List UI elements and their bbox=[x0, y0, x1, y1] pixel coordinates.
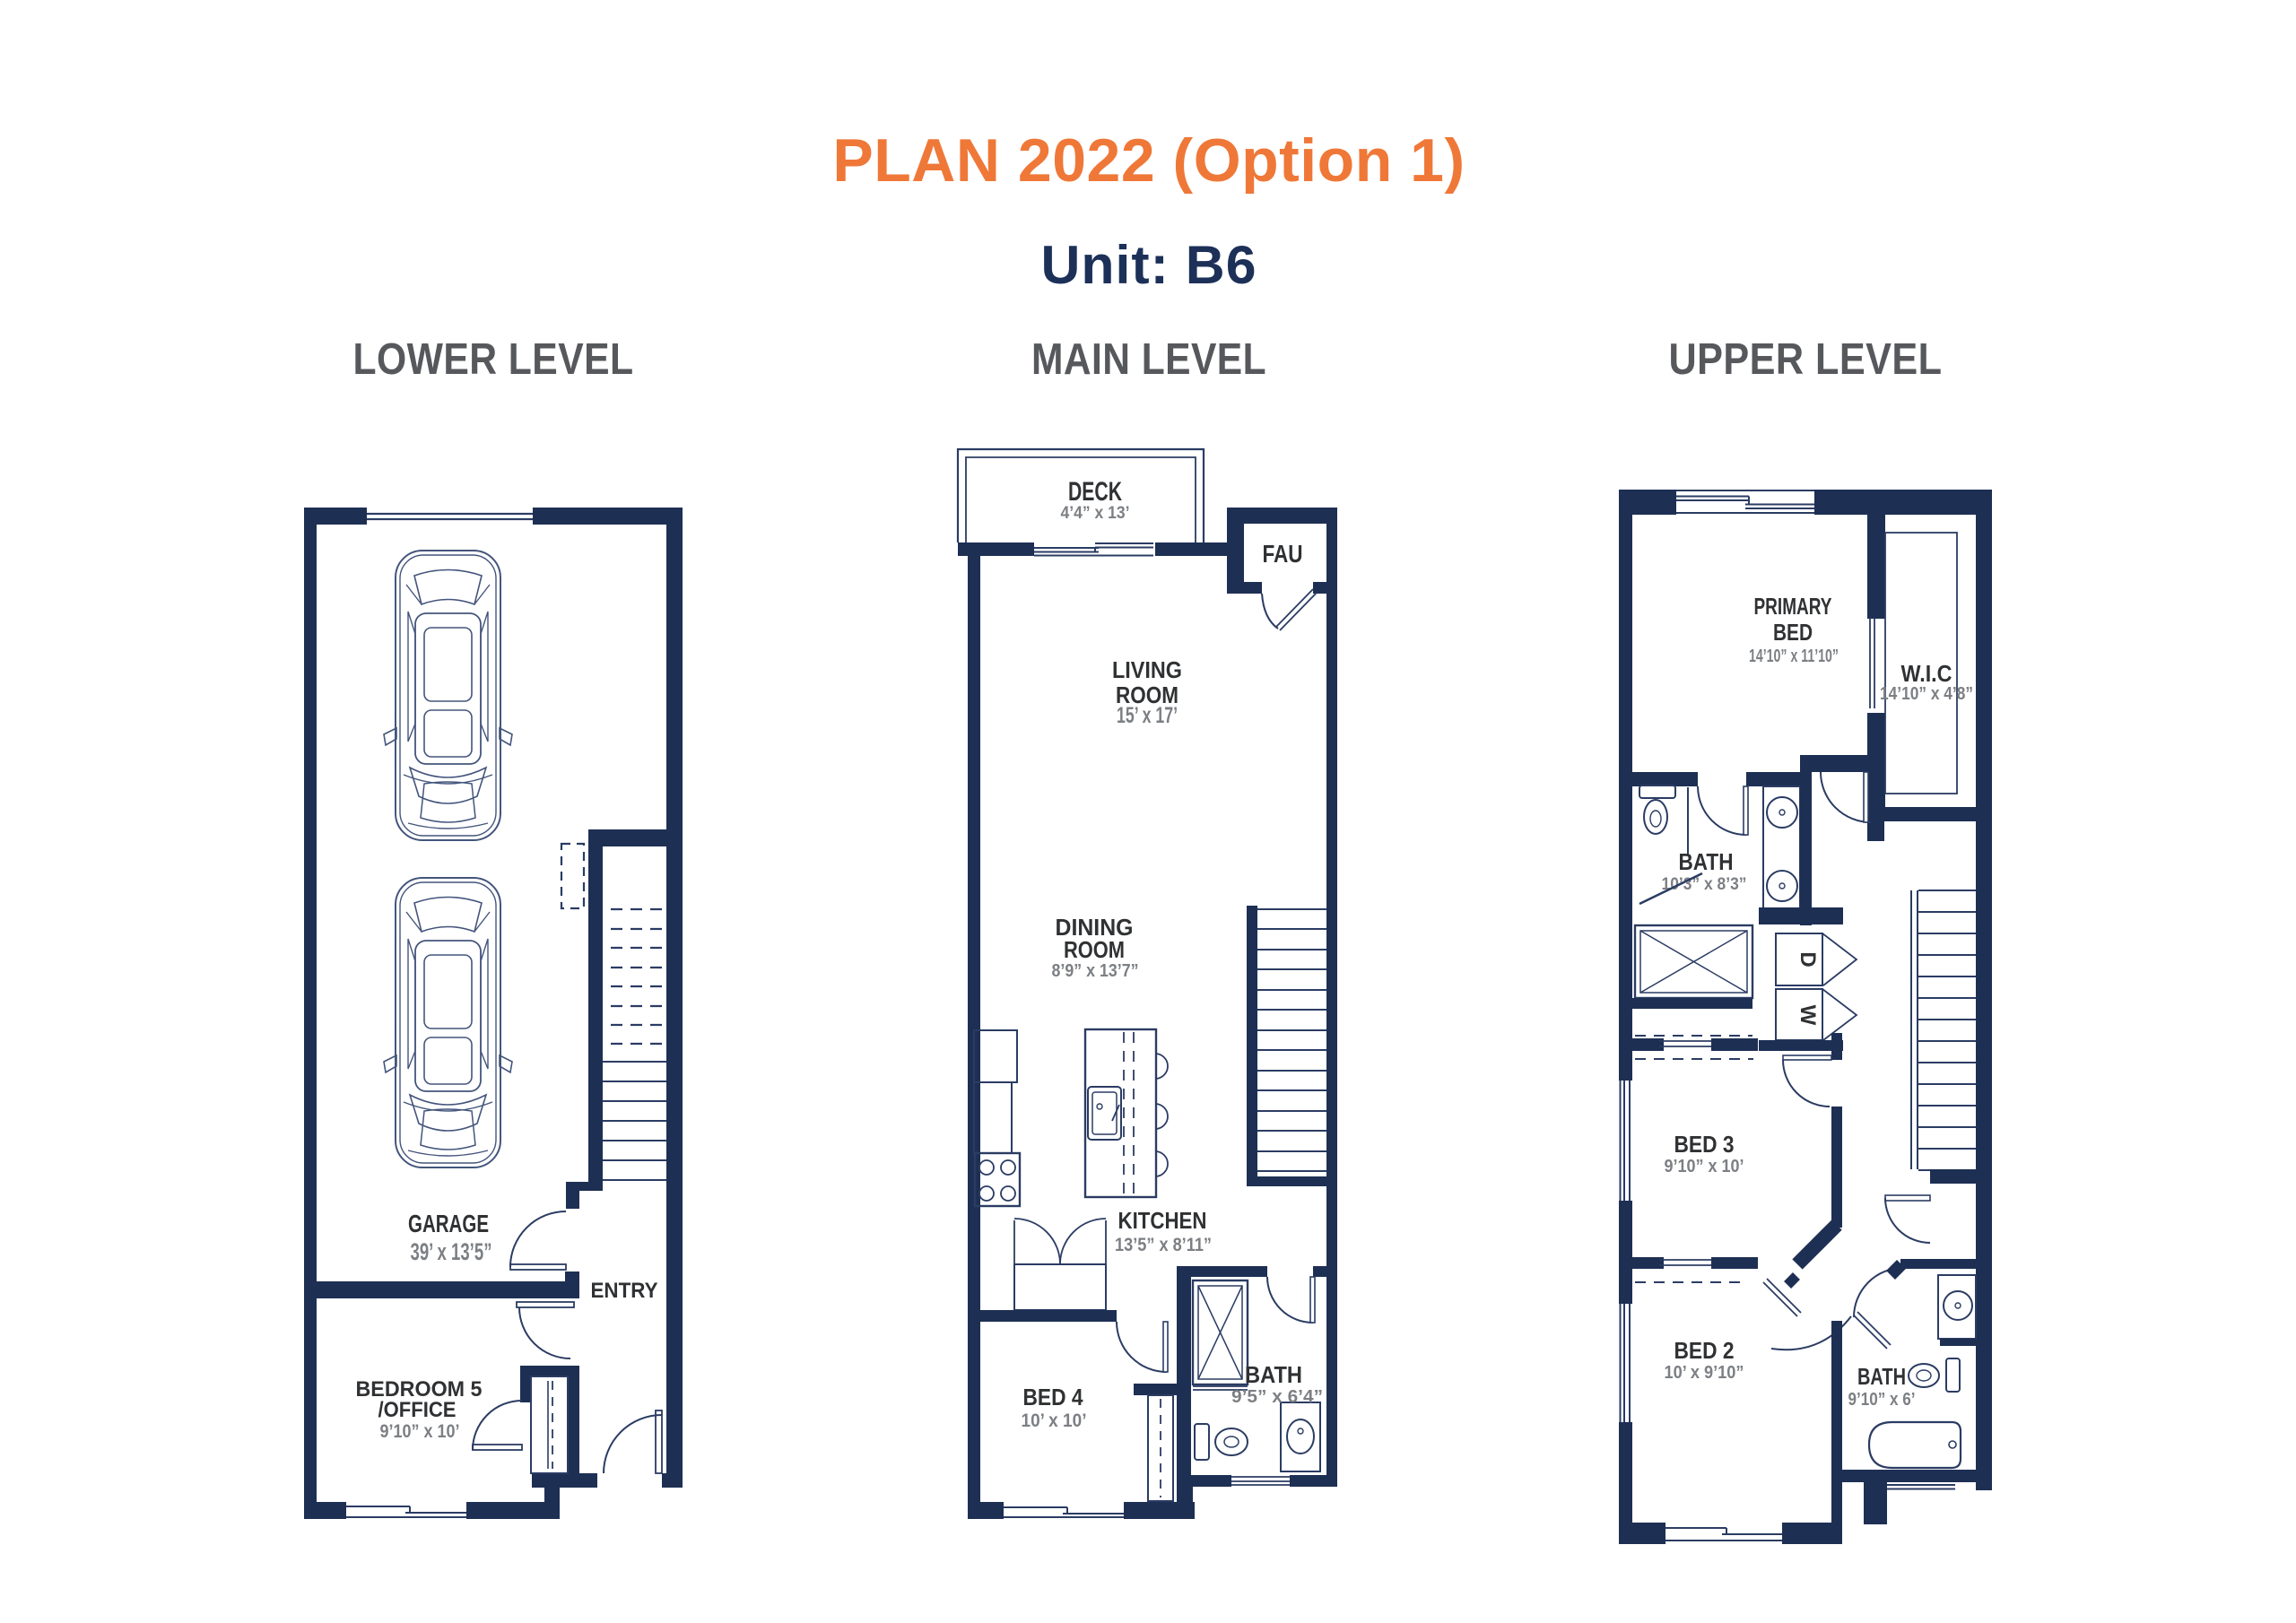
svg-text:9’5” x 6’4”: 9’5” x 6’4” bbox=[1231, 1387, 1323, 1407]
svg-text:10’3” x 8’3”: 10’3” x 8’3” bbox=[1662, 874, 1747, 894]
svg-text:BED 2: BED 2 bbox=[1674, 1337, 1735, 1364]
svg-text:10’ x 9’10”: 10’ x 9’10” bbox=[1665, 1363, 1744, 1383]
svg-text:9’10” x 10’: 9’10” x 10’ bbox=[380, 1421, 460, 1442]
svg-text:BATH: BATH bbox=[1245, 1361, 1302, 1388]
svg-text:FAU: FAU bbox=[1263, 540, 1303, 568]
svg-text:9’10” x 6’: 9’10” x 6’ bbox=[1848, 1390, 1916, 1410]
svg-text:ROOM: ROOM bbox=[1064, 936, 1125, 963]
svg-text:/OFFICE: /OFFICE bbox=[378, 1398, 457, 1422]
svg-text:D: D bbox=[1796, 951, 1820, 967]
svg-text:BATH: BATH bbox=[1679, 848, 1734, 875]
svg-text:MAIN LEVEL: MAIN LEVEL bbox=[1031, 335, 1266, 384]
svg-text:39’ x 13’5”: 39’ x 13’5” bbox=[411, 1238, 492, 1265]
svg-text:8’9” x 13’7”: 8’9” x 13’7” bbox=[1052, 961, 1139, 981]
svg-text:GARAGE: GARAGE bbox=[408, 1210, 489, 1237]
svg-text:BED 4: BED 4 bbox=[1023, 1384, 1083, 1410]
svg-text:LIVING: LIVING bbox=[1112, 656, 1182, 683]
svg-text:9’10” x 10’: 9’10” x 10’ bbox=[1665, 1157, 1744, 1176]
svg-text:LOWER LEVEL: LOWER LEVEL bbox=[353, 335, 634, 384]
svg-text:DECK: DECK bbox=[1068, 477, 1122, 507]
svg-text:10’ x 10’: 10’ x 10’ bbox=[1022, 1410, 1087, 1431]
svg-text:BED 3: BED 3 bbox=[1674, 1131, 1735, 1158]
svg-text:PLAN 2022 (Option 1): PLAN 2022 (Option 1) bbox=[832, 126, 1465, 195]
svg-text:BATH: BATH bbox=[1857, 1363, 1906, 1390]
svg-text:14’10” x 11’10”: 14’10” x 11’10” bbox=[1749, 647, 1839, 666]
svg-text:W.I.C: W.I.C bbox=[1901, 660, 1952, 687]
svg-text:W: W bbox=[1796, 1005, 1820, 1026]
svg-text:15’ x 17’: 15’ x 17’ bbox=[1117, 703, 1178, 728]
svg-text:Unit: B6: Unit: B6 bbox=[1041, 235, 1257, 295]
svg-text:13’5” x 8’11”: 13’5” x 8’11” bbox=[1115, 1235, 1212, 1255]
svg-text:BED: BED bbox=[1773, 619, 1813, 646]
svg-text:ENTRY: ENTRY bbox=[591, 1279, 658, 1303]
svg-text:KITCHEN: KITCHEN bbox=[1118, 1207, 1207, 1234]
svg-text:4’4” x 13’: 4’4” x 13’ bbox=[1061, 504, 1130, 523]
svg-text:UPPER LEVEL: UPPER LEVEL bbox=[1669, 335, 1943, 384]
svg-text:PRIMARY: PRIMARY bbox=[1754, 593, 1832, 620]
svg-text:14’10” x 4’8”: 14’10” x 4’8” bbox=[1880, 684, 1973, 704]
